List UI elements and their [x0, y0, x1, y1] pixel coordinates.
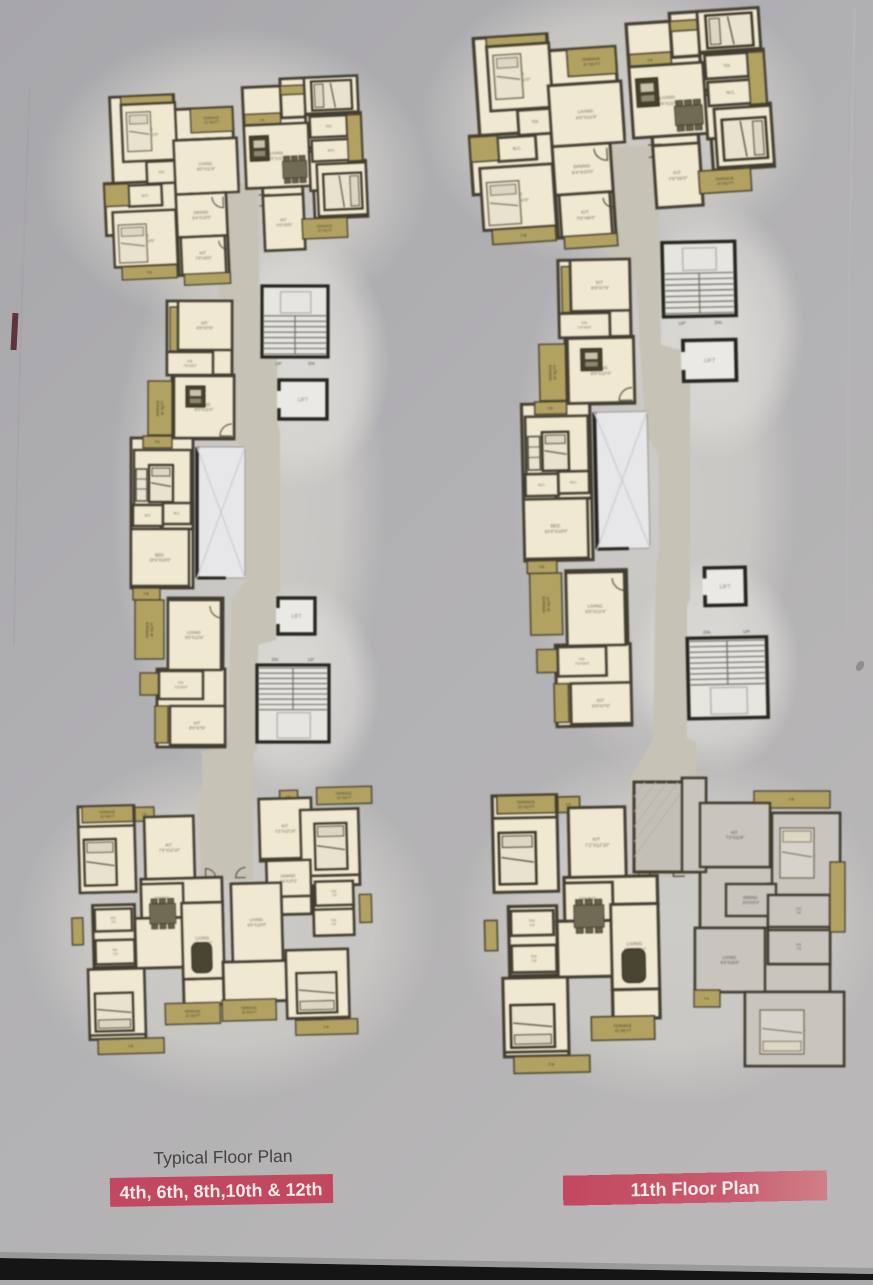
svg-text:TERRACE 36 SQ.FT: TERRACE 36 SQ.FT — [146, 621, 154, 638]
svg-text:TOI 7'4": TOI 7'4" — [796, 907, 802, 915]
svg-text:F.B.: F.B. — [155, 440, 161, 444]
svg-text:W.C.: W.C. — [512, 146, 521, 152]
svg-text:UP: UP — [275, 361, 281, 366]
svg-text:TERRACE 36 SQ.FT: TERRACE 36 SQ.FT — [542, 595, 551, 613]
svg-text:TERRACE 22 SQ.FT: TERRACE 22 SQ.FT — [184, 1009, 201, 1018]
svg-text:DINING 8'4"X10'0": DINING 8'4"X10'0" — [192, 209, 212, 220]
svg-text:LIVING 9'0"X12'4": LIVING 9'0"X12'4" — [585, 604, 607, 615]
svg-text:4th, 6th, 8th,10th & 12th: 4th, 6th, 8th,10th & 12th — [119, 1179, 322, 1203]
svg-text:TOI 7'4": TOI 7'4" — [110, 916, 116, 924]
svg-text:TERRACE 22 SQ.FT: TERRACE 22 SQ.FT — [335, 791, 352, 800]
svg-text:LIFT: LIFT — [719, 584, 731, 590]
svg-text:TOI: TOI — [158, 170, 164, 174]
svg-text:UP: UP — [308, 657, 314, 662]
svg-text:Typical Floor Plan: Typical Floor Plan — [153, 1146, 292, 1168]
svg-text:F.B.: F.B. — [789, 798, 795, 802]
svg-text:TOI 7'4": TOI 7'4" — [796, 943, 802, 951]
svg-text:TERRACE 36 SQ.FT: TERRACE 36 SQ.FT — [156, 399, 164, 416]
svg-text:LIVING 9'0"X11'6": LIVING 9'0"X11'6" — [575, 108, 598, 121]
svg-text:LIVING 9'0"X12'4": LIVING 9'0"X12'4" — [185, 630, 205, 640]
svg-text:F.B.: F.B. — [549, 1063, 556, 1067]
svg-text:LIVING 9'0"X11'6": LIVING 9'0"X11'6" — [197, 161, 217, 172]
svg-text:W.C.: W.C. — [570, 480, 578, 484]
svg-text:W.C.: W.C. — [328, 148, 336, 152]
svg-text:TERRACE 36 SQ.FT: TERRACE 36 SQ.FT — [548, 363, 557, 381]
svg-text:F.B.: F.B. — [324, 1025, 330, 1029]
svg-text:F.B.: F.B. — [521, 232, 528, 237]
svg-text:TERRACE 22 SQ.FT: TERRACE 22 SQ.FT — [715, 175, 735, 186]
svg-text:LIVING 9'0"X10'0": LIVING 9'0"X10'0" — [247, 917, 267, 928]
svg-text:F.B.: F.B. — [144, 592, 150, 596]
svg-text:F.B.: F.B. — [539, 565, 545, 569]
svg-text:UP: UP — [678, 321, 685, 327]
svg-text:TERRACE 22 SQ.FT: TERRACE 22 SQ.FT — [241, 1006, 258, 1015]
svg-text:TOI: TOI — [531, 119, 538, 124]
svg-text:TOI: TOI — [723, 63, 730, 68]
svg-text:F.B.: F.B. — [260, 118, 266, 122]
svg-text:F.B.: F.B. — [147, 270, 153, 274]
svg-text:TOI 7'4": TOI 7'4" — [529, 919, 536, 928]
svg-text:W.C.: W.C. — [726, 90, 735, 96]
svg-text:TERRACE 22 SQ.FT: TERRACE 22 SQ.FT — [99, 810, 116, 819]
svg-text:DINING 8'4"X10'0": DINING 8'4"X10'0" — [571, 163, 594, 176]
svg-text:LIFT: LIFT — [298, 397, 308, 403]
svg-text:W.C.: W.C. — [141, 194, 149, 198]
svg-text:TOI 7'4": TOI 7'4" — [331, 889, 337, 897]
svg-text:W.C.: W.C. — [145, 514, 152, 518]
svg-text:UP: UP — [743, 629, 750, 635]
svg-text:DN: DN — [703, 630, 711, 636]
svg-text:TERRACE 22 SQ.FT: TERRACE 22 SQ.FT — [316, 224, 333, 233]
svg-text:F.B.: F.B. — [128, 1044, 134, 1048]
svg-text:F.B.: F.B. — [547, 406, 553, 410]
svg-text:TERRACE 22 SQ.FT: TERRACE 22 SQ.FT — [613, 1024, 633, 1033]
svg-text:DN: DN — [715, 320, 723, 326]
svg-text:DN: DN — [272, 657, 279, 662]
svg-text:TOI: TOI — [325, 125, 331, 129]
svg-text:TOI 7'4": TOI 7'4" — [531, 955, 538, 964]
svg-text:LIFT: LIFT — [704, 358, 716, 364]
svg-text:LIFT: LIFT — [291, 614, 301, 620]
svg-text:11th Floor Plan: 11th Floor Plan — [630, 1178, 759, 1201]
svg-text:TOI 7'4": TOI 7'4" — [331, 918, 337, 926]
svg-text:F.B.: F.B. — [142, 812, 147, 816]
svg-text:TERRACE 22 SQ.FT: TERRACE 22 SQ.FT — [581, 56, 601, 67]
svg-text:LIVING 9'0"X15'0": LIVING 9'0"X15'0" — [720, 955, 740, 965]
svg-text:F.B.: F.B. — [566, 803, 572, 807]
svg-text:W.C.: W.C. — [538, 483, 546, 487]
svg-text:DINING 24'X10'2": DINING 24'X10'2" — [742, 895, 760, 905]
svg-text:F.B.: F.B. — [704, 997, 709, 1001]
svg-text:TERRACE 22 SQ.FT: TERRACE 22 SQ.FT — [516, 800, 536, 809]
svg-text:DINING 24'X10'2": DINING 24'X10'2" — [280, 873, 298, 884]
svg-text:F.B.: F.B. — [647, 59, 653, 63]
svg-text:TOI 7'4": TOI 7'4" — [112, 948, 118, 956]
svg-text:TERRACE 22 SQ.FT: TERRACE 22 SQ.FT — [203, 116, 220, 125]
svg-text:W.C.: W.C. — [174, 512, 181, 516]
svg-text:DN: DN — [308, 361, 315, 366]
